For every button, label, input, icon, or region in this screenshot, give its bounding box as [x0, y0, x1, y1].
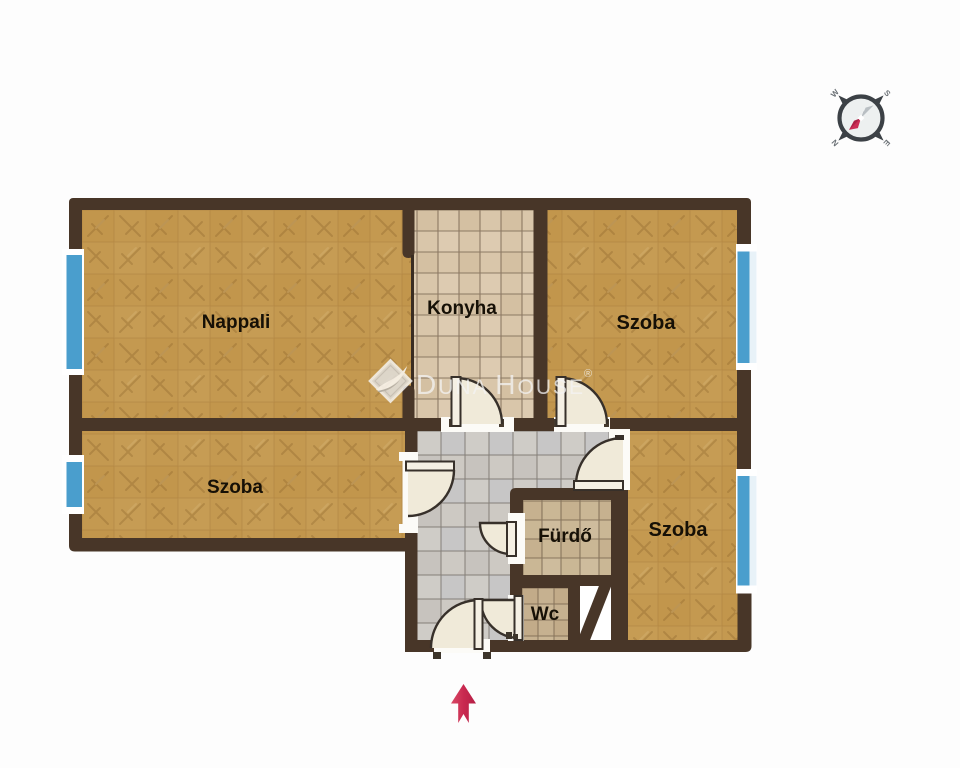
svg-text:Szoba: Szoba [617, 312, 677, 334]
svg-text:Szoba: Szoba [207, 477, 263, 498]
svg-text:Konyha: Konyha [427, 298, 497, 319]
svg-text:Szoba: Szoba [649, 519, 709, 541]
svg-text:Wc: Wc [531, 604, 560, 625]
svg-text:Fürdő: Fürdő [538, 526, 592, 547]
svg-text:Nappali: Nappali [202, 312, 271, 333]
svg-text:®: ® [584, 368, 592, 380]
